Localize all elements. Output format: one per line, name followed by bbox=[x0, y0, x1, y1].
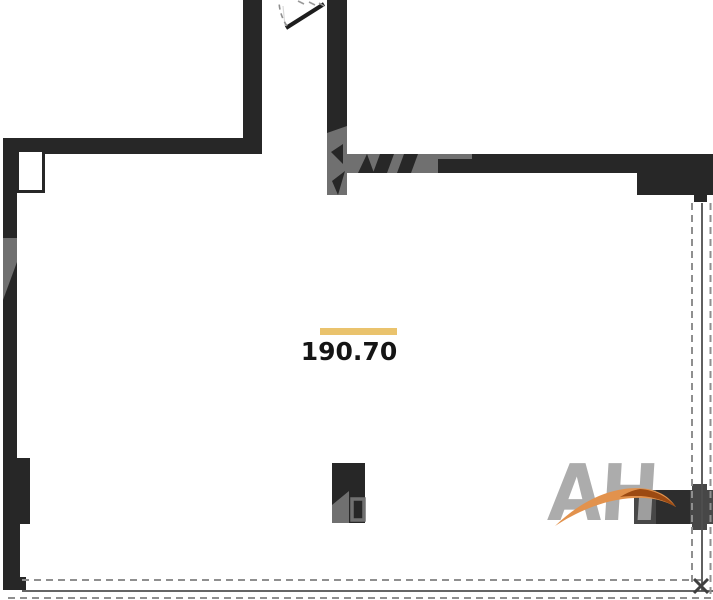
glazing-bottom bbox=[8, 580, 713, 598]
ventilation-shaft bbox=[18, 151, 44, 192]
entry-door-leaf bbox=[286, 4, 324, 28]
glazing-left-jamb bbox=[17, 577, 26, 590]
glazing-top-jamb bbox=[694, 195, 707, 202]
corridor-left-wall bbox=[243, 0, 262, 154]
watermark-wall-overlay bbox=[3, 126, 472, 523]
area-value: 190.70 bbox=[296, 337, 402, 366]
entry-door-swing-arc bbox=[279, 1, 287, 26]
top-right-corner-block bbox=[637, 154, 713, 195]
entry-door bbox=[279, 1, 324, 28]
glazing-right bbox=[692, 203, 711, 598]
left-wall-thick-section bbox=[3, 458, 30, 524]
watermark-logo-text: АН bbox=[546, 455, 659, 533]
area-underline bbox=[320, 328, 397, 335]
floor-plan-canvas: АН 190.70 bbox=[0, 0, 713, 600]
